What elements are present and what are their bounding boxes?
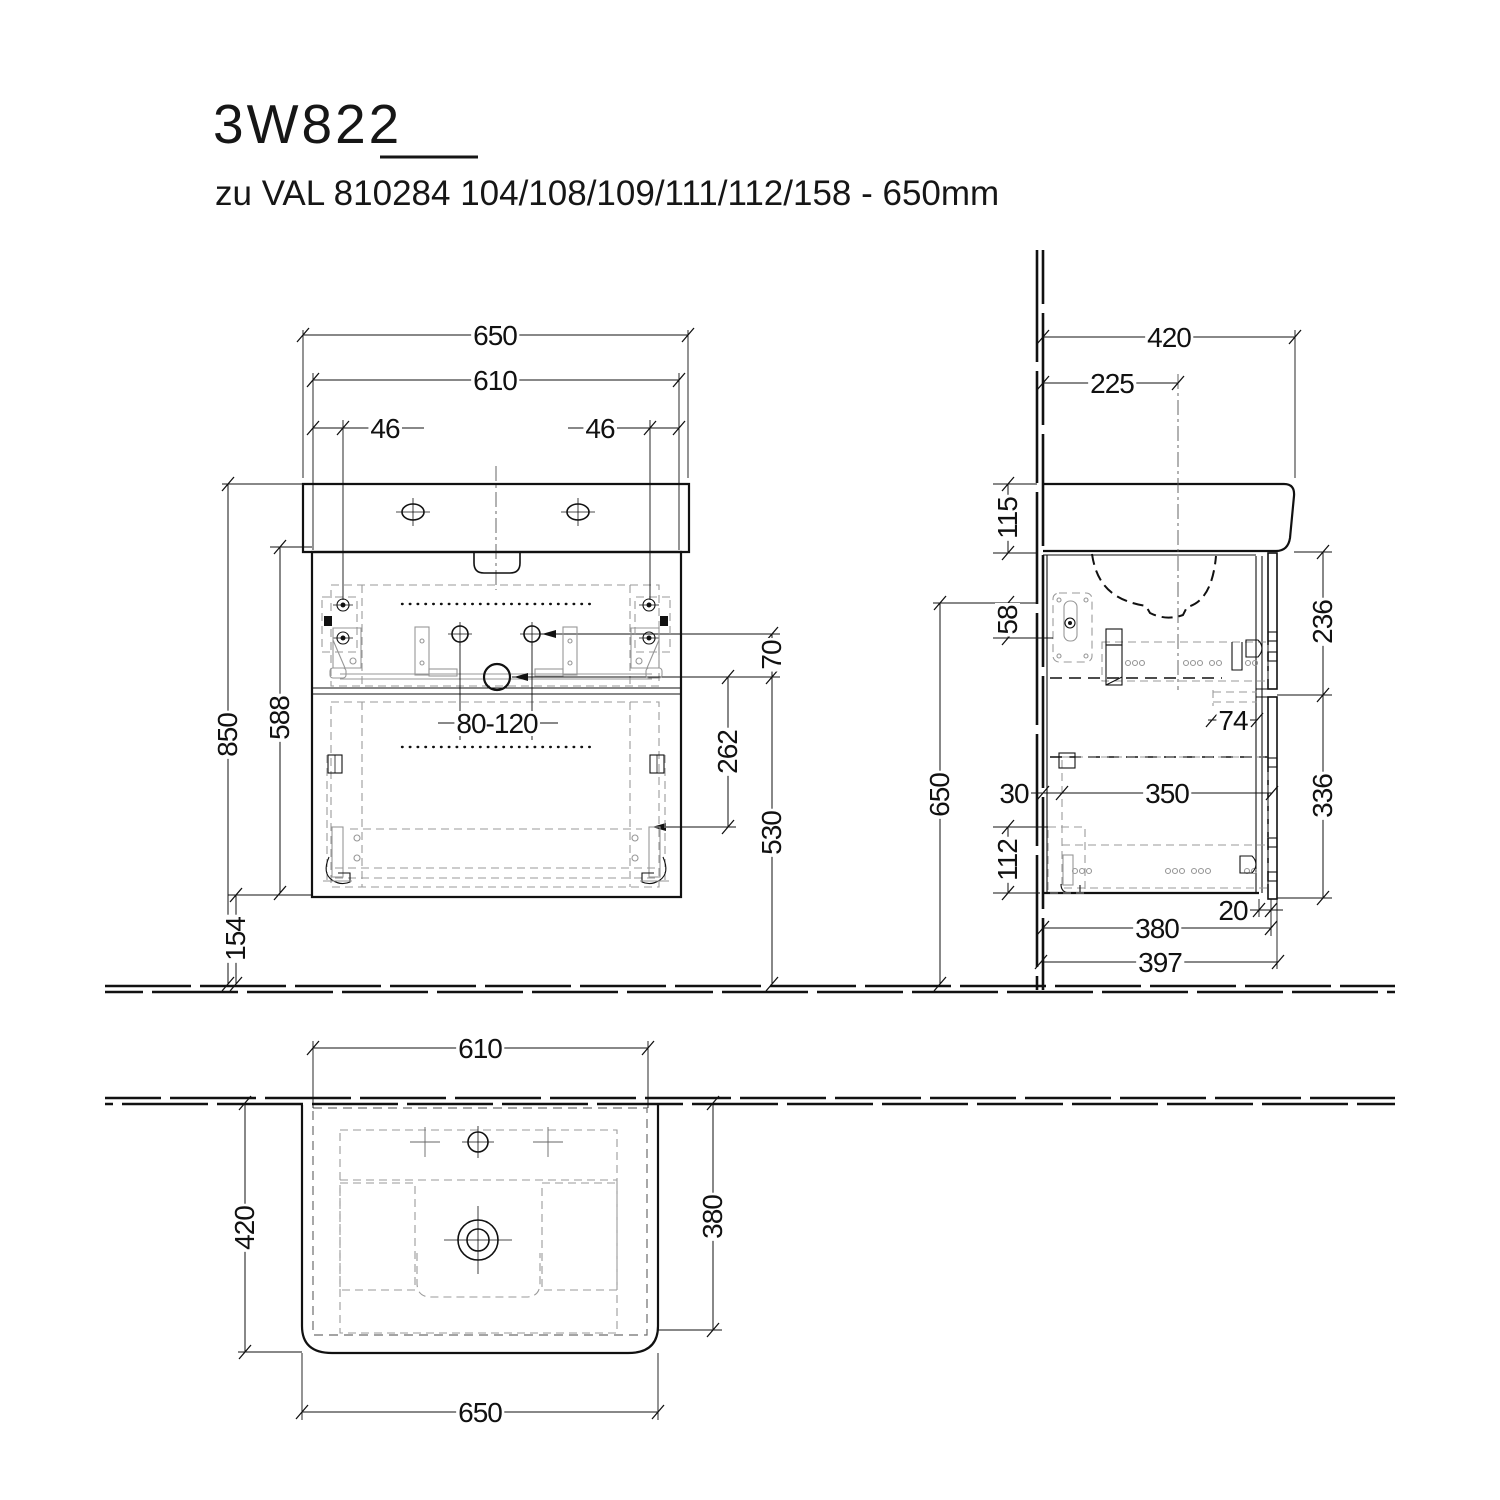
dim-label: 80-120: [456, 708, 538, 739]
dim-label: 30: [999, 778, 1029, 809]
side-upper-slide-part-part: [1246, 661, 1251, 666]
title-block: 3W822 zu VAL 810284 104/108/109/111/112/…: [213, 93, 999, 213]
side-lower-slide-part: [1268, 758, 1277, 767]
dim-label: 380: [1135, 913, 1179, 944]
side-lower-slide-part: [1048, 827, 1085, 893]
dim-top-depth-cabinet: 380: [697, 1096, 728, 1337]
dim-label: 70: [756, 640, 787, 670]
dim-label: 650: [924, 773, 955, 817]
dim-front-drain-height: 530: [756, 677, 787, 991]
side-lower-slide-part: [1268, 838, 1277, 847]
dim-label: 397: [1138, 947, 1182, 978]
top-drawer-hidden: [340, 1130, 617, 1333]
top-slide-right-hidden: [542, 1183, 617, 1290]
dim-side-back-clearance: 30: [997, 778, 1068, 809]
side-upper-slide-part-part: [1184, 661, 1189, 666]
front-hinge-hardware-left-part: [420, 639, 424, 643]
side-washbasin-profile: [1043, 484, 1294, 551]
side-lower-slide-part-part: [1199, 869, 1204, 874]
dim-label: 46: [585, 413, 615, 444]
dim-front-drain-range: 80-120: [438, 708, 558, 739]
dim-front-bottom-clearance: 154: [220, 888, 251, 991]
front-hinge-hardware-left-part: [350, 658, 356, 664]
dim-side-drawer-depth: 350: [1062, 778, 1278, 809]
side-lower-slide: [1048, 753, 1277, 893]
dim-label: 420: [229, 1206, 260, 1250]
side-lower-slide-part: [1073, 869, 1257, 874]
dim-label: 225: [1090, 368, 1134, 399]
side-upper-slide-part-part: [1253, 661, 1258, 666]
dim-label: 115: [992, 497, 1023, 539]
side-lower-slide-part-part: [1166, 869, 1171, 874]
dim-label: 610: [458, 1033, 502, 1064]
drawing-number: 3W822: [213, 93, 402, 155]
dim-label: 236: [1307, 600, 1338, 644]
front-extension-lines: [222, 330, 688, 895]
front-hinge-hardware-left-part: [420, 661, 424, 665]
front-view-part: [396, 498, 430, 526]
side-upper-slide-part-part: [1191, 661, 1196, 666]
drawing-canvas: 3W822 zu VAL 810284 104/108/109/111/112/…: [0, 0, 1500, 1500]
dim-label: 650: [458, 1397, 502, 1428]
dim-side-drawer-gap: 74: [1206, 705, 1263, 736]
dim-label: 112: [992, 839, 1023, 881]
front-upper-drawer-hidden: [331, 585, 659, 686]
dim-label: 420: [1147, 322, 1191, 353]
side-lower-slide-part-part: [1192, 869, 1197, 874]
side-upper-slide-part: [1106, 645, 1122, 685]
drawing-subtitle: zu VAL 810284 104/108/109/111/112/158 - …: [215, 174, 999, 213]
dim-side-height: 650: [924, 596, 955, 991]
front-bracket-hardware-left-part: [332, 827, 343, 877]
side-mounting-bracket-part: [1084, 598, 1088, 602]
front-hinge-hardware-left-part: [429, 669, 457, 676]
side-mounting-bracket: [1053, 593, 1092, 662]
dim-label: 58: [992, 605, 1023, 635]
dim-side-hole-to-wall: 225: [1037, 368, 1184, 399]
floor-line: [105, 986, 1395, 992]
side-mounting-bracket-part: [1057, 598, 1061, 602]
side-upper-slide-part: [1126, 661, 1258, 666]
front-hinge-hardware-left-part: [415, 627, 429, 675]
side-lower-slide-part-part: [1180, 869, 1185, 874]
side-mounting-bracket-part: [1057, 654, 1061, 658]
side-upper-slide-part-part: [1217, 661, 1222, 666]
dim-top-width-overall: 650: [296, 1397, 664, 1428]
side-upper-slide: [1102, 629, 1277, 685]
dim-front-hole-offset-right: 46: [568, 413, 685, 444]
side-lower-slide-part: [1063, 855, 1073, 885]
side-lower-slide-part: [1059, 753, 1075, 768]
front-hinge-hardware-left-part: [330, 668, 346, 678]
side-lower-slide-part-part: [1087, 869, 1092, 874]
side-upper-slide-part: [1102, 642, 1268, 681]
dim-front-height-cabinet: 588: [264, 540, 295, 900]
dimension-layer: 650610464685058815480-120702625304202251…: [212, 320, 1338, 1428]
side-front-panel-upper: [1268, 553, 1277, 689]
dim-label: 588: [264, 696, 295, 740]
dim-side-lower-front-height: 336: [1307, 695, 1338, 905]
dim-front-knob-drain-gap: 70: [756, 627, 787, 684]
side-upper-slide-part-part: [1133, 661, 1138, 666]
technical-drawing-page: 3W822 zu VAL 810284 104/108/109/111/112/…: [0, 0, 1500, 1500]
side-lower-slide-part-part: [1173, 869, 1178, 874]
top-view-part: [462, 1126, 494, 1158]
side-lower-slide-part: [1268, 872, 1277, 881]
side-mounting-bracket-part: [1068, 621, 1072, 625]
front-bracket-hardware-left-part: [326, 857, 350, 884]
dim-front-height-total: 850: [212, 477, 243, 991]
dim-side-upper-front-height: 236: [1307, 545, 1338, 702]
side-wall-line: [1037, 250, 1043, 990]
dim-label: 20: [1218, 895, 1248, 926]
dim-label: 46: [370, 413, 400, 444]
side-lower-slide-part: [1062, 757, 1268, 888]
side-front-panel-lower: [1268, 697, 1277, 899]
side-upper-slide-part-part: [1140, 661, 1145, 666]
side-carcass-front: [1256, 556, 1262, 893]
front-hinge-hardware-left: [322, 597, 457, 678]
dim-front-hole-offset-left: 46: [307, 413, 424, 444]
plan-wall-line: [105, 1098, 1395, 1104]
top-view-part: [444, 1206, 512, 1274]
dim-top-width-cabinet: 610: [307, 1033, 654, 1064]
side-upper-slide-part-part: [1210, 661, 1215, 666]
dim-label: 74: [1218, 705, 1248, 736]
side-upper-slide-part-part: [1126, 661, 1131, 666]
side-upper-slide-part-part: [1198, 661, 1203, 666]
dim-label: 350: [1145, 778, 1189, 809]
side-upper-slide-part: [1268, 652, 1277, 661]
side-lower-slide-part-part: [1206, 869, 1211, 874]
dim-side-depth-overall: 420: [1037, 322, 1301, 353]
dim-label: 336: [1307, 774, 1338, 818]
dim-label: 530: [756, 811, 787, 855]
dim-top-depth-overall: 420: [229, 1096, 260, 1359]
dim-label: 610: [473, 365, 517, 396]
dim-side-total-depth: 397: [1035, 947, 1284, 978]
dim-label: 650: [473, 320, 517, 351]
front-bracket-hardware-left-part: [354, 855, 360, 861]
side-bowl-hidden: [1092, 554, 1216, 618]
front-overflow: [474, 552, 520, 573]
dim-side-slide-height: 112: [992, 820, 1023, 900]
front-view-part: [362, 585, 630, 686]
side-upper-slide-part: [1106, 629, 1122, 645]
dim-front-drain-bracket: 262: [712, 670, 743, 834]
side-lower-slide-part-part: [1080, 869, 1085, 874]
top-slide-left-hidden: [340, 1183, 415, 1290]
front-view: [222, 330, 780, 897]
dim-front-width-overall: 650: [297, 320, 694, 351]
front-hinge-hardware-left-part: [324, 616, 332, 626]
dim-label: 850: [212, 713, 243, 757]
dim-label: 154: [220, 917, 251, 961]
dim-label: 262: [712, 730, 743, 774]
front-bracket-hardware-left: [323, 755, 360, 885]
front-view-part: [561, 498, 595, 526]
dim-label: 380: [697, 1195, 728, 1239]
front-bracket-hardware-right: [632, 755, 669, 885]
front-view-part: [542, 630, 556, 638]
side-mounting-bracket-part: [1084, 654, 1088, 658]
side-drawer-front-hidden: [1213, 690, 1257, 706]
side-upper-slide-part: [1268, 632, 1277, 641]
side-view-part: [1256, 689, 1277, 697]
dim-side-basin-height: 115: [992, 477, 1023, 560]
dim-front-width-cabinet: 610: [307, 365, 685, 396]
front-bracket-hardware-left-part: [354, 835, 360, 841]
